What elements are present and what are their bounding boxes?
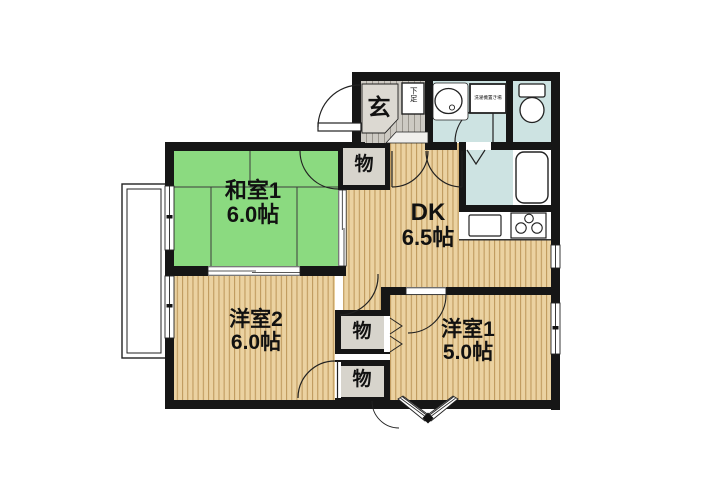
laundry-label: 洗濯機置き場 xyxy=(471,95,505,100)
sliding-door-tatami-western2 xyxy=(208,267,300,275)
window-dk-right xyxy=(551,245,560,268)
bathtub xyxy=(516,152,548,203)
balcony xyxy=(122,184,166,358)
sliding-door-tatami-dk xyxy=(339,190,346,266)
stove-burner xyxy=(516,223,526,233)
window-western2-left xyxy=(165,276,174,338)
tatami-room-label: 和室1 6.0帖 xyxy=(225,179,281,227)
floorplan: 和室1 6.0帖 DK 6.5帖 洋室2 6.0帖 洋室1 5.0帖 物 物 物… xyxy=(0,0,720,480)
closet-low-label: 物 xyxy=(352,370,371,391)
washbasin-drain xyxy=(449,105,454,110)
kitchen-sink xyxy=(469,215,501,236)
room-area: 6.0帖 xyxy=(229,331,283,354)
entry-label: 玄 xyxy=(368,95,391,120)
western-room1-label: 洋室1 5.0帖 xyxy=(441,318,495,364)
western-room2-label: 洋室2 6.0帖 xyxy=(229,308,283,354)
floorplan-drawing xyxy=(0,0,720,480)
room-area: 6.0帖 xyxy=(225,203,281,227)
window-tatami-left xyxy=(165,186,174,250)
stove-burner xyxy=(525,214,534,223)
room-name: 洋室1 xyxy=(441,318,495,341)
bathroom-floor xyxy=(466,150,513,205)
stove-burner xyxy=(532,223,542,233)
closet-top-label: 物 xyxy=(354,155,373,176)
room-area: 5.0帖 xyxy=(441,341,495,364)
toilet-tank xyxy=(519,84,545,97)
room-name: 洋室2 xyxy=(229,308,283,331)
dk-floor-right xyxy=(459,240,551,287)
room-area: 6.5帖 xyxy=(402,226,455,250)
room-name: DK xyxy=(402,200,455,226)
washbasin xyxy=(435,89,462,114)
dk-label: DK 6.5帖 xyxy=(402,200,455,251)
room-name: 和室1 xyxy=(225,179,281,203)
toilet-bowl xyxy=(520,98,544,123)
closet-mid-label: 物 xyxy=(352,322,371,343)
window-western1-right xyxy=(551,303,560,354)
shoe-box-label: 下足 xyxy=(409,87,417,102)
